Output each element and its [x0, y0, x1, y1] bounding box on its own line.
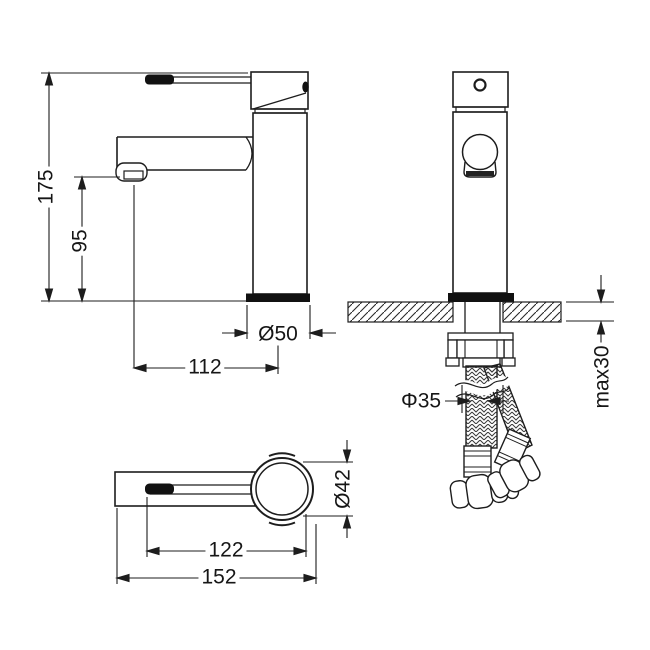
dim-spout-height-label: 95	[69, 226, 92, 255]
front-base-plate	[448, 293, 514, 302]
plan-base-circle	[251, 458, 313, 520]
dim-body-diameter-label: Ø42	[332, 466, 355, 512]
drawing-linework	[0, 0, 650, 650]
plan-view	[115, 453, 313, 525]
mounting-shank	[465, 302, 500, 333]
front-handle-dot	[475, 80, 486, 91]
dimension-lines	[41, 73, 614, 584]
counter-section	[348, 302, 561, 322]
side-handle-block	[251, 72, 308, 109]
dim-hole-diameter-label: Φ35	[398, 390, 444, 413]
faucet-technical-drawing: 175 95 Ø50 112 Φ35 max30 Ø42 122 152	[0, 0, 650, 650]
side-handle-screw	[302, 82, 308, 93]
side-body	[253, 113, 307, 294]
dim-base-diameter-label: Ø50	[255, 323, 301, 346]
dim-spout-reach-label: 112	[185, 356, 224, 379]
dim-overall-length-label: 152	[198, 566, 239, 589]
hose-left	[466, 366, 497, 448]
front-aerator-slot	[466, 171, 494, 176]
dim-max-counter-label: max30	[591, 342, 614, 411]
plan-lever-grip	[145, 484, 174, 495]
dim-handle-reach-label: 122	[205, 539, 246, 562]
side-aerator	[116, 163, 147, 181]
side-lever-grip	[145, 75, 174, 85]
front-spout-circle	[463, 135, 498, 170]
side-base-plate	[246, 294, 310, 303]
counter-right	[503, 302, 561, 322]
supply-hoses	[449, 364, 543, 512]
dim-total-height-label: 175	[35, 166, 58, 207]
plan-lever-outline	[115, 472, 255, 506]
front-view	[448, 72, 514, 302]
side-view	[116, 72, 310, 302]
counter-left	[348, 302, 453, 322]
